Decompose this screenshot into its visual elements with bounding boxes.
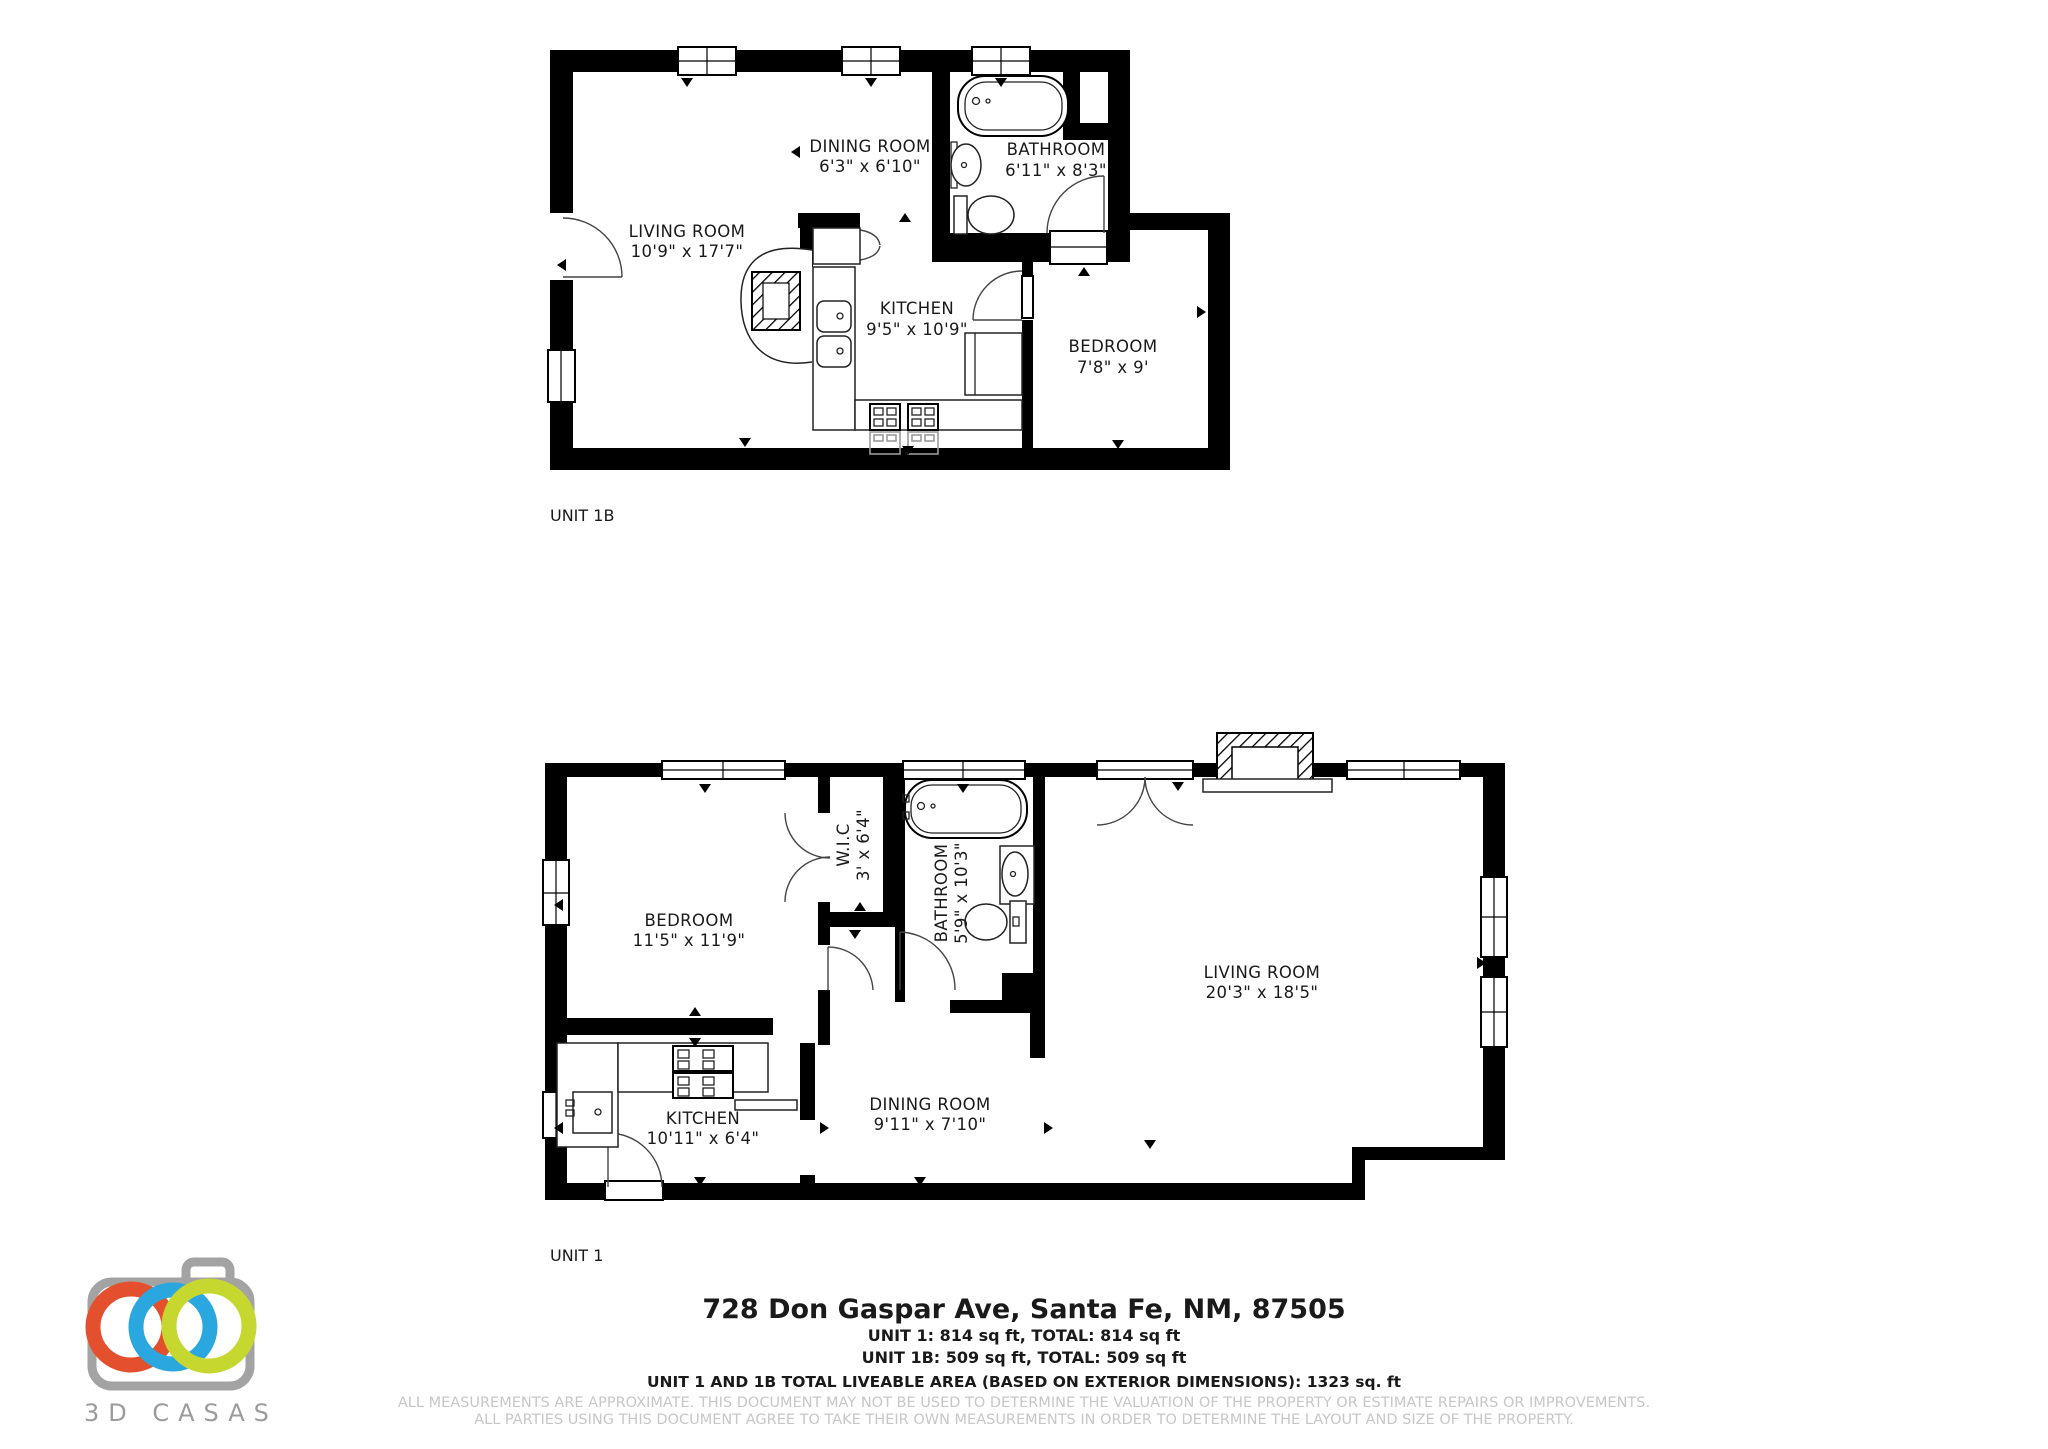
counter xyxy=(735,1100,797,1110)
arrow-icon xyxy=(820,1122,829,1134)
stove-icon xyxy=(673,1046,733,1098)
floor-plan-drawing: LIVING ROOM 10'9" x 17'7" DINING ROOM 6'… xyxy=(0,0,2048,1449)
unit-1b-plan: LIVING ROOM 10'9" x 17'7" DINING ROOM 6'… xyxy=(548,47,1230,525)
window-icon xyxy=(678,47,736,75)
room-label-wic: W.I.C xyxy=(834,823,853,866)
window-icon xyxy=(972,47,1030,75)
arrow-icon xyxy=(854,902,866,911)
room-dims-bedroom: 7'8" x 9' xyxy=(1077,358,1149,377)
room-dims-living-room: 20'3" x 18'5" xyxy=(1206,983,1319,1002)
arrow-icon xyxy=(865,78,877,87)
room-label-dining-room: DINING ROOM xyxy=(869,1095,990,1114)
arrow-icon xyxy=(1144,1140,1156,1149)
unit-1-room-labels: BEDROOM 11'5" x 11'9" W.I.C 3' x 6'4" BA… xyxy=(633,809,1321,1148)
front-door-opening xyxy=(548,213,575,280)
bifold-door-icon xyxy=(860,230,880,260)
floor-plan-page: LIVING ROOM 10'9" x 17'7" DINING ROOM 6'… xyxy=(0,0,2048,1449)
entry-double-door xyxy=(1097,761,1193,825)
toilet-icon xyxy=(965,901,1026,943)
door-arc-icon xyxy=(1047,176,1104,233)
arrow-icon xyxy=(1078,267,1090,276)
window-icon xyxy=(903,761,1025,779)
window-icon xyxy=(1481,877,1507,957)
room-dims-bedroom: 11'5" x 11'9" xyxy=(633,931,746,950)
stove-icon xyxy=(870,404,900,430)
arrow-icon xyxy=(899,213,911,222)
room-label-kitchen: KITCHEN xyxy=(880,299,954,318)
room-label-dining-room: DINING ROOM xyxy=(809,137,930,156)
arrow-icon xyxy=(1197,306,1206,318)
door-arc-icon xyxy=(828,947,873,990)
toilet-icon xyxy=(954,196,1014,234)
pantry-closet xyxy=(813,228,860,264)
room-dims-dining-room: 9'11" x 7'10" xyxy=(874,1115,987,1134)
arrow-icon xyxy=(681,78,693,87)
room-dims-kitchen: 9'5" x 10'9" xyxy=(866,320,968,339)
unit1-area-line: UNIT 1: 814 sq ft, TOTAL: 814 sq ft xyxy=(868,1326,1181,1345)
door-arc-icon xyxy=(1097,777,1145,825)
window-icon xyxy=(1347,761,1460,779)
room-dims-kitchen: 10'11" x 6'4" xyxy=(647,1129,760,1148)
window-icon xyxy=(842,47,900,75)
brand-name: 3D CASAS xyxy=(84,1399,278,1427)
footer: 728 Don Gaspar Ave, Santa Fe, NM, 87505 … xyxy=(398,1294,1650,1428)
disclaimer-line-1: ALL MEASUREMENTS ARE APPROXIMATE. THIS D… xyxy=(398,1395,1650,1411)
bathtub-icon xyxy=(958,76,1068,136)
unit-1-caption: UNIT 1 xyxy=(550,1246,603,1265)
total-area-line: UNIT 1 AND 1B TOTAL LIVEABLE AREA (BASED… xyxy=(647,1373,1402,1391)
window-icon xyxy=(543,860,569,925)
room-label-living-room: LIVING ROOM xyxy=(1204,963,1321,982)
sink-icon xyxy=(817,301,851,332)
sink-icon xyxy=(817,336,851,367)
counter xyxy=(965,333,1022,395)
door-arc-icon xyxy=(785,813,830,902)
camera-icon xyxy=(92,1262,250,1386)
door-arc-icon xyxy=(973,271,1022,320)
room-dims-wic: 3' x 6'4" xyxy=(854,809,873,881)
kitchen-door-opening xyxy=(1022,276,1033,318)
door-arc-icon xyxy=(1145,777,1193,825)
stove-icon xyxy=(908,404,938,430)
unit-1b-caption: UNIT 1B xyxy=(550,506,614,525)
room-label-bathroom: BATHROOM xyxy=(932,844,951,943)
window-icon xyxy=(1481,977,1507,1047)
room-label-bedroom: BEDROOM xyxy=(645,911,734,930)
arrow-icon xyxy=(791,146,800,158)
room-dims-living-room: 10'9" x 17'7" xyxy=(631,242,744,261)
unit1b-area-line: UNIT 1B: 509 sq ft, TOTAL: 509 sq ft xyxy=(862,1348,1187,1367)
arrow-icon xyxy=(739,438,751,447)
arrow-icon xyxy=(1044,1122,1053,1134)
room-label-kitchen: KITCHEN xyxy=(666,1109,740,1128)
door-sill xyxy=(605,1181,663,1200)
room-label-living-room: LIVING ROOM xyxy=(629,222,746,241)
arrow-icon xyxy=(1112,440,1124,449)
sink-icon xyxy=(951,142,981,188)
hearth xyxy=(1203,779,1332,792)
window-icon xyxy=(548,350,575,402)
address-title: 728 Don Gaspar Ave, Santa Fe, NM, 87505 xyxy=(702,1294,1345,1325)
chimney-icon xyxy=(1203,733,1332,792)
room-label-bathroom: BATHROOM xyxy=(1007,140,1106,159)
disclaimer-line-2: ALL PARTIES USING THIS DOCUMENT AGREE TO… xyxy=(474,1412,1574,1428)
arrow-icon xyxy=(689,1007,701,1016)
arrow-icon xyxy=(1172,782,1184,791)
sink-icon xyxy=(1000,846,1034,904)
room-dims-bathroom: 5'9" x 10'3" xyxy=(952,842,971,944)
arrow-icon xyxy=(849,930,861,939)
arrow-icon xyxy=(699,784,711,793)
room-dims-bathroom: 6'11" x 8'3" xyxy=(1005,161,1107,180)
unit-1-plan: BEDROOM 11'5" x 11'9" W.I.C 3' x 6'4" BA… xyxy=(543,733,1507,1265)
room-dims-dining-room: 6'3" x 6'10" xyxy=(819,157,921,176)
brand-logo: 3D CASAS xyxy=(84,1262,278,1427)
sink-icon xyxy=(566,1092,612,1133)
room-label-bedroom: BEDROOM xyxy=(1069,337,1158,356)
window-icon xyxy=(662,761,785,779)
